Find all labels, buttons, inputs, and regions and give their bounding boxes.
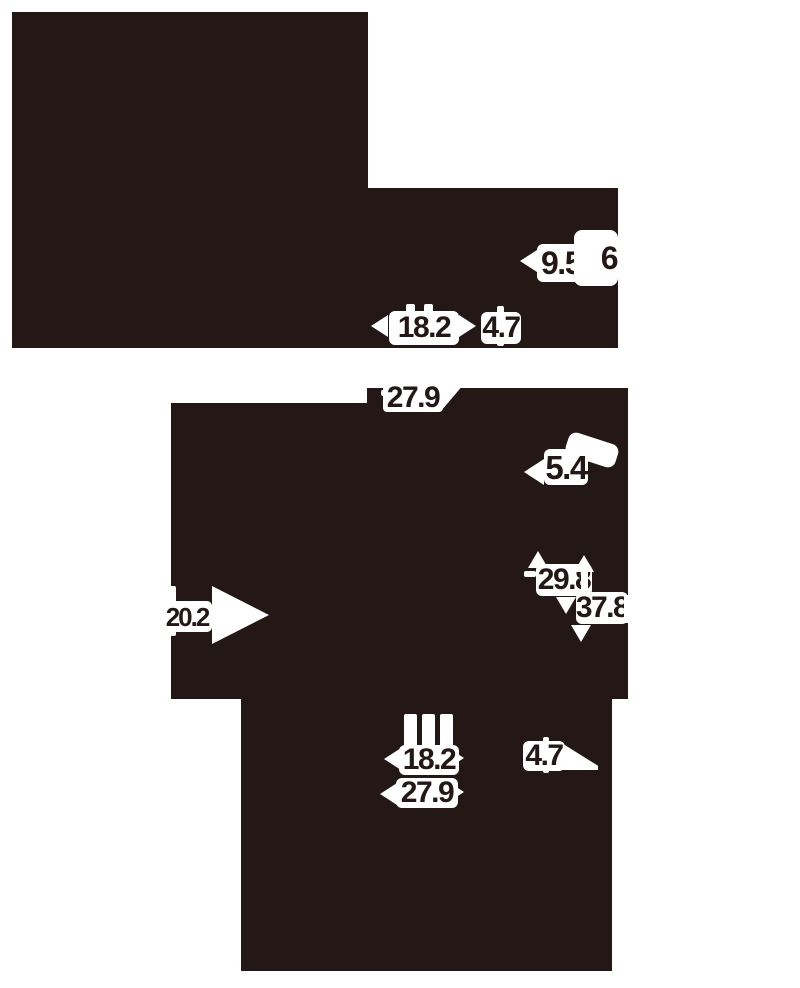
extension-line	[624, 595, 630, 623]
silhouette-front-view-body	[171, 403, 628, 699]
arrow-left-icon	[371, 315, 388, 337]
arrow-up-icon	[574, 555, 594, 572]
dim-label-bottom-depth: 27.9	[396, 778, 458, 808]
dim-label-front-depth: 27.9	[383, 384, 443, 412]
big-arrow-right-icon	[212, 586, 269, 644]
dim-label-top-offset: 4.7	[481, 312, 521, 344]
dim-label-top-width: 18.2	[389, 311, 459, 345]
dim-label-overall-height: 37.8	[576, 592, 628, 624]
dim-label-edge: 6	[574, 230, 618, 286]
arrow-down-icon	[571, 625, 591, 642]
dim-label-left-depth: 20.2	[162, 601, 212, 632]
dimension-diagram: 9.5 6 18.2 4.7 27.9 5.4 29.8 37.8 20.2 1…	[0, 0, 800, 988]
silhouette-top-view-left	[12, 12, 368, 348]
arrow-down-icon	[556, 597, 576, 614]
dim-label-bottom-offset: 4.7	[523, 741, 565, 771]
dim-label-front-offset: 5.4	[544, 449, 588, 485]
arrow-right-icon	[459, 315, 476, 337]
dim-label-bottom-width: 18.2	[399, 745, 459, 775]
dimension-line	[524, 571, 536, 577]
arrow-left-icon	[380, 783, 397, 805]
